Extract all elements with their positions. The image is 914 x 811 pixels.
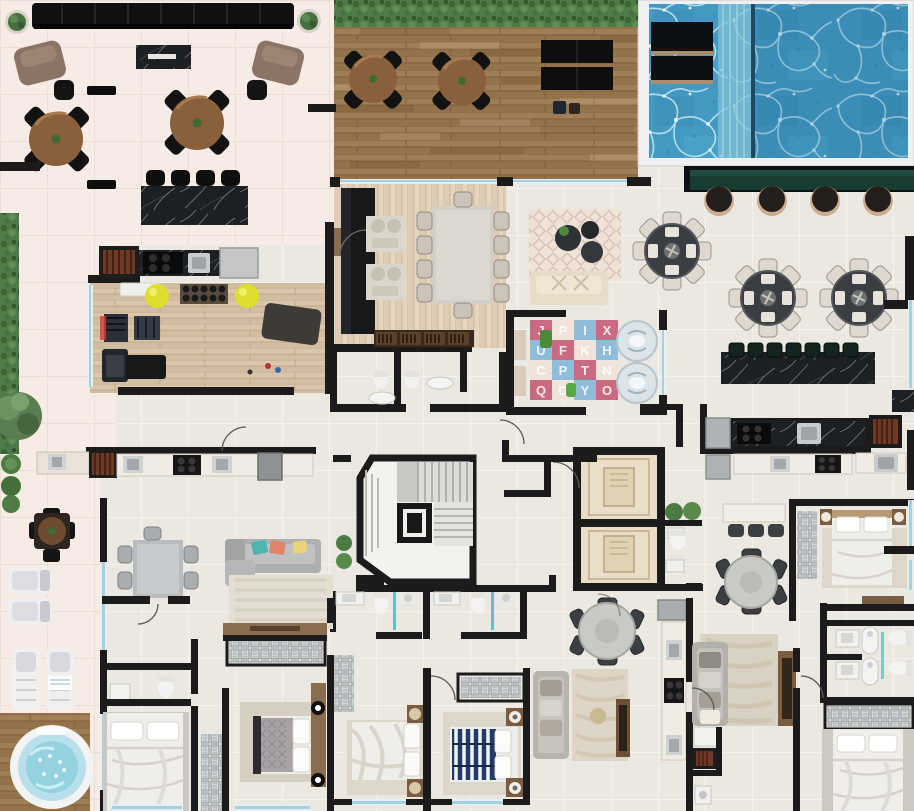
svg-text:Y: Y [581,383,590,398]
svg-text:X: X [603,323,612,338]
svg-text:N: N [602,363,611,378]
svg-text:P: P [559,323,568,338]
svg-text:I: I [583,323,587,338]
svg-text:P: P [559,363,568,378]
svg-text:K: K [580,343,590,358]
svg-text:F: F [559,343,567,358]
svg-text:H: H [602,343,611,358]
svg-text:T: T [581,363,589,378]
svg-text:Q: Q [536,383,546,398]
svg-text:O: O [602,383,612,398]
svg-text:C: C [536,363,546,378]
